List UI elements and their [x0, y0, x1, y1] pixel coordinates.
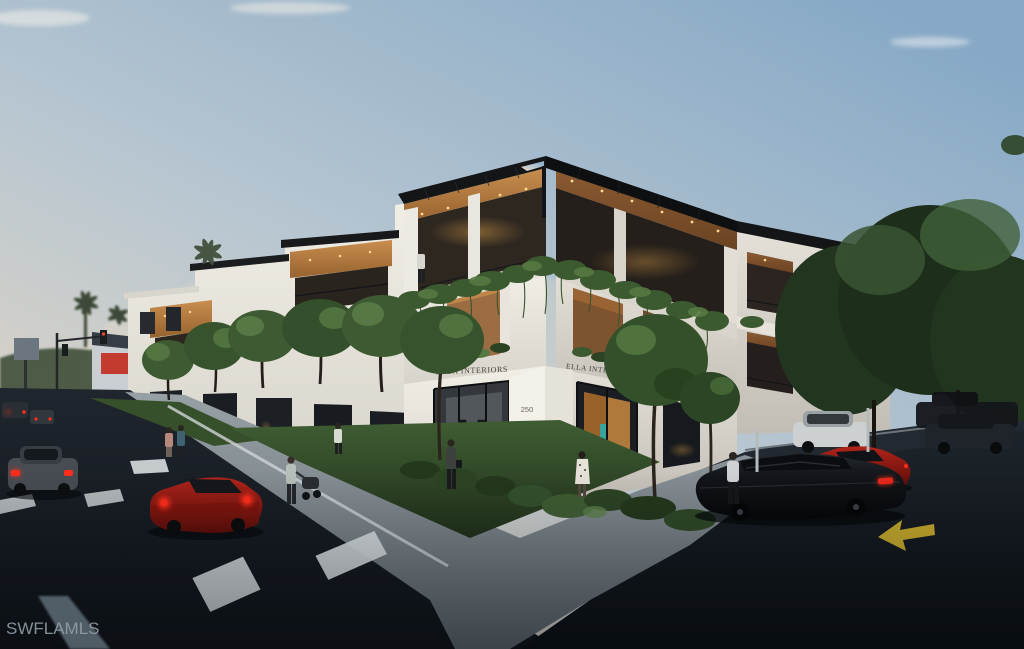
- signal-head-icon: [100, 330, 107, 344]
- billboard: [14, 338, 39, 360]
- rendering-image: M 250 ELLA INTERIORS ELLA INTERIORS: [0, 0, 1024, 649]
- distant-red-sign: [101, 353, 128, 374]
- scene: M 250 ELLA INTERIORS ELLA INTERIORS: [0, 0, 1024, 649]
- watermark-text: SWFLAMLS: [6, 619, 100, 638]
- address-number: 250: [521, 405, 534, 414]
- bottom-vignette: [0, 470, 1024, 649]
